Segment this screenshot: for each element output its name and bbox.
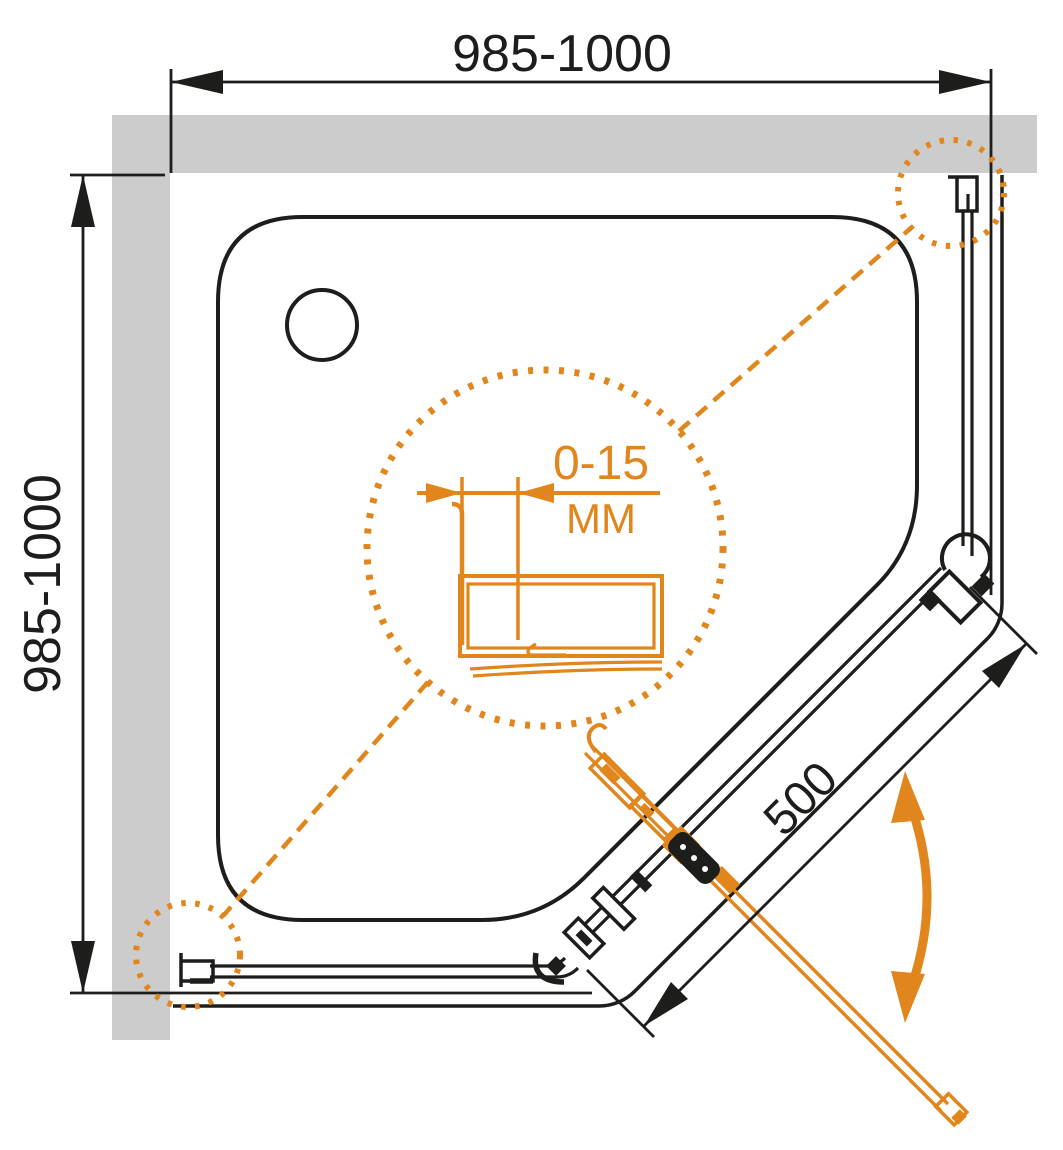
handle-screw-3 [702,866,708,872]
handle-screw-1 [680,844,686,850]
shower-enclosure-plan-drawing: 985-1000 985-1000 500 0-15 ММ [0,0,1063,1150]
drawing-canvas: 985-1000 985-1000 500 0-15 ММ [0,0,1063,1150]
dim-left-label: 985-1000 [14,474,72,694]
handle-screw-2 [691,855,697,861]
adjustment-range-label: 0-15 [553,437,649,490]
adjustment-unit-label: ММ [566,495,636,542]
wall-left-band [112,115,170,1040]
dim-top-label: 985-1000 [452,25,672,83]
wall-top-band [112,115,1037,173]
